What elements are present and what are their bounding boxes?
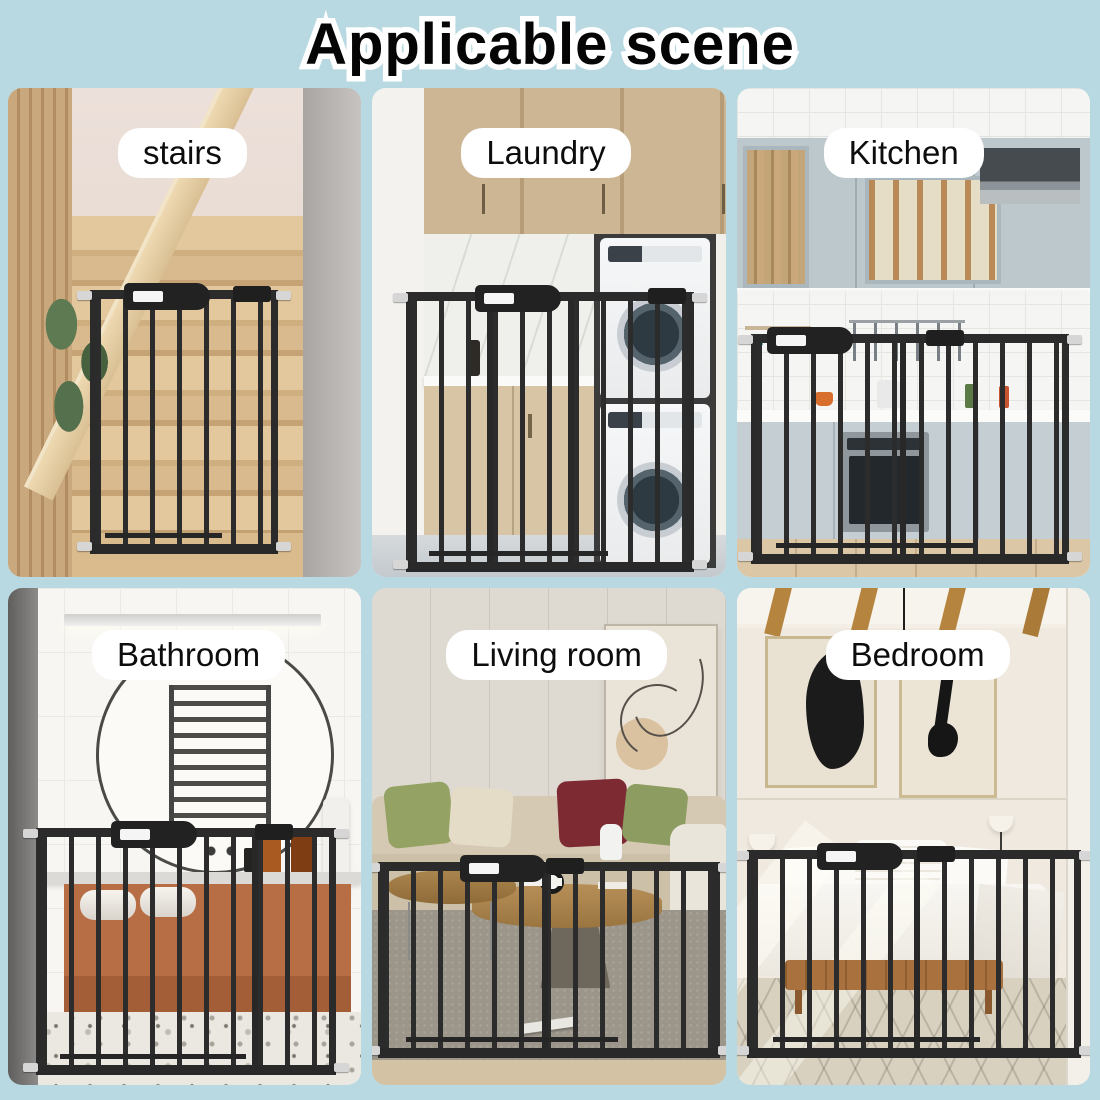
safety-gate <box>747 850 1081 1058</box>
scene-label-laundry: Laundry <box>461 128 630 178</box>
page-title: Applicable scene Applicable scene <box>305 11 795 78</box>
wall-mount <box>1079 1046 1090 1055</box>
gate-left-post <box>751 334 758 564</box>
wall-mount <box>276 291 291 300</box>
gate-bars <box>757 338 1063 558</box>
wall-mount <box>692 560 707 569</box>
safety-gate <box>90 290 278 554</box>
gate-latch <box>475 285 561 312</box>
wall-mount <box>372 1046 380 1055</box>
safety-gate <box>378 862 720 1058</box>
wall-mount <box>738 335 753 344</box>
art-shape <box>928 723 958 757</box>
gate-clamp <box>546 858 584 874</box>
wall-mount <box>334 829 349 838</box>
wall-mount <box>77 291 92 300</box>
glass-cabinet <box>743 146 809 288</box>
gate-right-post <box>1074 850 1081 1058</box>
gate-door-post <box>487 292 493 572</box>
scene-card-kitchen: Kitchen <box>737 88 1090 577</box>
safety-gate <box>36 828 336 1075</box>
wall-mount <box>718 863 725 872</box>
gate-left-post <box>90 290 97 554</box>
wall-mount <box>737 851 749 860</box>
scene-label-bathroom: Bathroom <box>92 630 285 680</box>
gate-door-post <box>542 862 548 1058</box>
scene-grid: stairs Laundry <box>0 88 1100 1085</box>
under-cabinet-light <box>737 288 1090 296</box>
gate-left-post <box>747 850 754 1058</box>
figurine <box>600 824 622 860</box>
scene-label-stairs: stairs <box>118 128 247 178</box>
gate-bottom-rail <box>406 562 694 572</box>
gate-door-post <box>252 828 258 1075</box>
pillow-green <box>383 781 455 850</box>
gray-wall <box>303 88 361 577</box>
gate-bars <box>96 294 272 548</box>
gate-clamp <box>233 286 271 302</box>
scene-label-living-room: Living room <box>446 630 667 680</box>
wall-mount <box>737 1046 749 1055</box>
gate-right-post <box>713 862 720 1058</box>
wall-mount <box>23 1063 38 1072</box>
wall-mount <box>372 863 380 872</box>
wall-mount <box>23 829 38 838</box>
gate-left-post <box>36 828 43 1075</box>
gate-left-post <box>406 292 413 572</box>
gate-door-post <box>568 292 574 572</box>
wood-floor <box>372 1060 725 1085</box>
page-title-text: Applicable scene <box>305 12 795 77</box>
gate-latch <box>767 327 853 354</box>
pillow-cream <box>448 786 514 848</box>
wall-lamp <box>989 816 1013 832</box>
gate-bottom-rail <box>378 1048 720 1058</box>
light-bar <box>64 614 321 626</box>
scene-label-kitchen: Kitchen <box>824 128 984 178</box>
safety-gate <box>751 334 1069 564</box>
towel-ladder-reflection <box>169 685 271 835</box>
cabinet-handles <box>424 184 725 214</box>
gate-door-bottom-rail <box>776 543 973 548</box>
scene-card-laundry: Laundry <box>372 88 725 577</box>
gate-door-bottom-rail <box>429 551 608 556</box>
wall-mount <box>718 1046 725 1055</box>
wall-trim-line <box>737 798 1068 800</box>
header: Applicable scene Applicable scene <box>0 0 1100 88</box>
wall-mount <box>334 1063 349 1072</box>
scene-label-bedroom: Bedroom <box>826 630 1010 680</box>
wall-mount <box>692 293 707 302</box>
scene-card-stairs: stairs <box>8 88 361 577</box>
gate-clamp <box>648 288 686 304</box>
gate-latch <box>124 283 210 310</box>
wall-mount <box>1079 851 1090 860</box>
gate-right-post <box>1062 334 1069 564</box>
wall-mount <box>738 552 753 561</box>
gate-bars <box>42 832 330 1069</box>
gate-bottom-rail <box>36 1065 336 1075</box>
gate-bottom-rail <box>90 544 278 554</box>
gate-bottom-rail <box>751 554 1069 564</box>
gate-door-bottom-rail <box>406 1037 618 1042</box>
wall-mount <box>1067 552 1082 561</box>
gate-right-post <box>271 290 278 554</box>
gate-latch <box>817 843 903 870</box>
gate-right-post <box>329 828 336 1075</box>
gate-latch <box>460 855 546 882</box>
wall-mount <box>77 542 92 551</box>
wall-mount <box>393 560 408 569</box>
gate-door-post <box>900 334 906 564</box>
scene-card-bathroom: Bathroom <box>8 588 361 1085</box>
safety-gate <box>406 292 694 572</box>
gate-bars <box>412 296 688 566</box>
gate-door-bottom-rail <box>60 1054 246 1059</box>
wall-mount <box>276 542 291 551</box>
gate-bars <box>384 866 714 1052</box>
gate-door-bottom-rail <box>105 533 222 538</box>
gate-clamp <box>917 846 955 862</box>
gate-right-post <box>687 292 694 572</box>
gate-bottom-rail <box>747 1048 1081 1058</box>
wall-mount <box>393 293 408 302</box>
gate-top-rail <box>747 850 1081 859</box>
gate-left-post <box>378 862 385 1058</box>
gate-door-post <box>914 850 920 1058</box>
range-hood <box>980 148 1080 204</box>
gate-door-bottom-rail <box>773 1037 980 1042</box>
gate-latch <box>111 821 197 848</box>
wall-mount <box>1067 335 1082 344</box>
scene-card-living-room: Living room <box>372 588 725 1085</box>
scene-card-bedroom: Bedroom <box>737 588 1090 1085</box>
gate-clamp <box>255 824 293 840</box>
gate-clamp <box>926 330 964 346</box>
